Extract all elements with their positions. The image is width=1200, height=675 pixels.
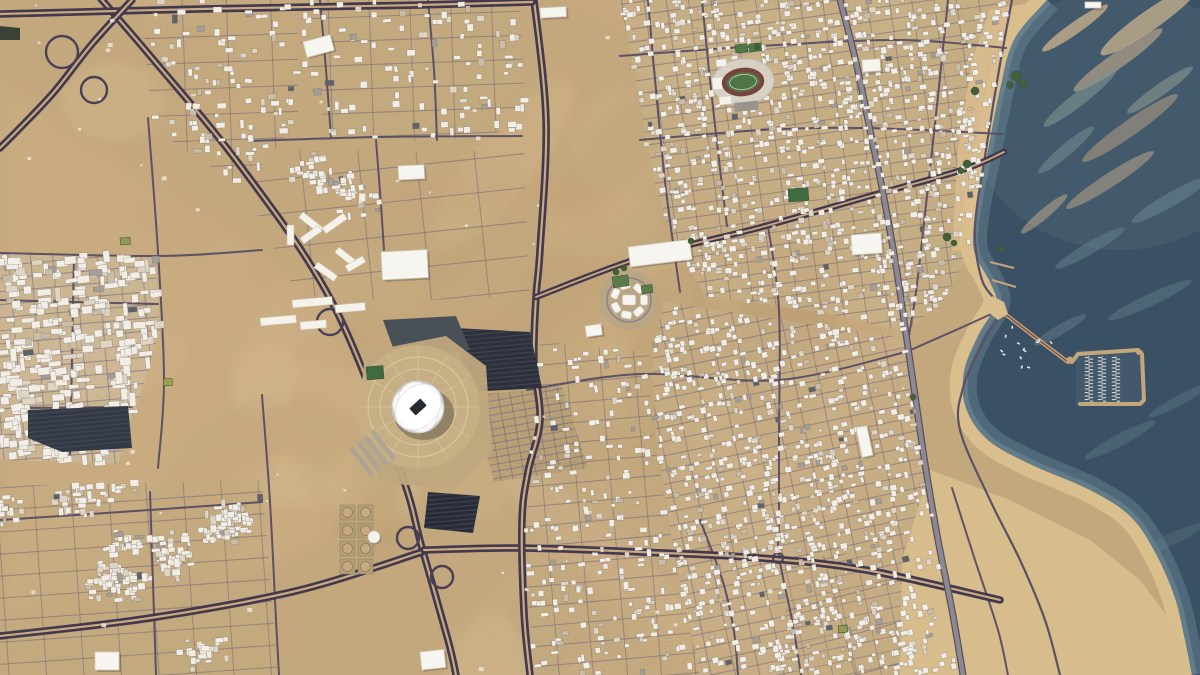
aerial-city-map [0, 0, 1200, 675]
running-track [723, 68, 763, 96]
sports-field [838, 625, 848, 633]
tree-cluster [971, 87, 979, 95]
apartment-bar [287, 225, 294, 245]
warehouse [398, 165, 427, 182]
tree-cluster [1019, 79, 1027, 87]
tree-cluster [943, 233, 951, 241]
sports-field [612, 275, 629, 288]
sports-field [735, 44, 748, 53]
tree-cluster [613, 269, 619, 275]
storage-tank [361, 544, 371, 554]
sports-field [641, 284, 653, 293]
sports-field [788, 188, 809, 202]
solar-parking-lot [0, 26, 20, 40]
tree-cluster [1007, 82, 1014, 89]
warehouse [851, 233, 884, 257]
tree-cluster [998, 246, 1004, 252]
grandstand [716, 59, 727, 67]
tree-cluster [1011, 71, 1021, 81]
warehouse [585, 324, 605, 339]
dome-building [368, 531, 380, 543]
storage-tank [343, 508, 353, 518]
grandstand [719, 96, 732, 105]
warehouse [95, 652, 121, 672]
tree-cluster [951, 240, 957, 246]
sports-field [163, 378, 172, 386]
campus-building [641, 295, 648, 305]
storage-tank [343, 562, 353, 572]
campus-building [621, 310, 632, 319]
campus-complex [599, 270, 659, 330]
sports-field [366, 366, 384, 380]
tree-cluster [958, 168, 964, 174]
warehouse [862, 59, 883, 74]
storage-tank [343, 526, 353, 536]
tree-cluster [963, 160, 971, 168]
warehouse [381, 250, 431, 282]
tree-cluster [621, 265, 627, 271]
tree-cluster [754, 44, 760, 50]
tree-cluster [910, 394, 916, 400]
map-canvas [0, 0, 1200, 675]
warehouse [540, 7, 569, 20]
storage-tank [343, 544, 353, 554]
boat [1011, 326, 1013, 329]
tree-cluster [688, 238, 694, 244]
sports-field [120, 237, 130, 245]
storage-tank [361, 508, 371, 518]
storage-tank [361, 562, 371, 572]
warehouse [420, 649, 448, 671]
warehouse [1085, 2, 1103, 10]
